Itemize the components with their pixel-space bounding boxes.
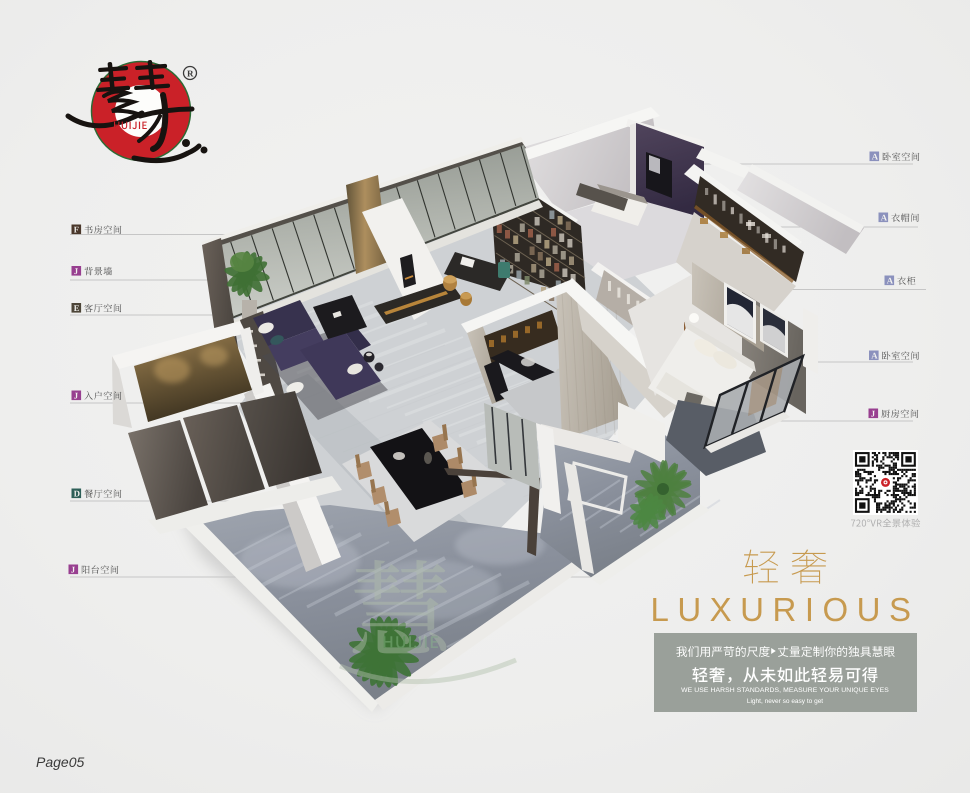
svg-text:WE USE HARSH STANDARDS, MEASUR: WE USE HARSH STANDARDS, MEASURE YOUR UNI…: [681, 687, 889, 694]
svg-text:LUXURIOUS: LUXURIOUS: [650, 591, 919, 628]
svg-text:Page05: Page05: [36, 754, 84, 770]
svg-text:Light, never so easy to get: Light, never so easy to get: [747, 698, 823, 705]
